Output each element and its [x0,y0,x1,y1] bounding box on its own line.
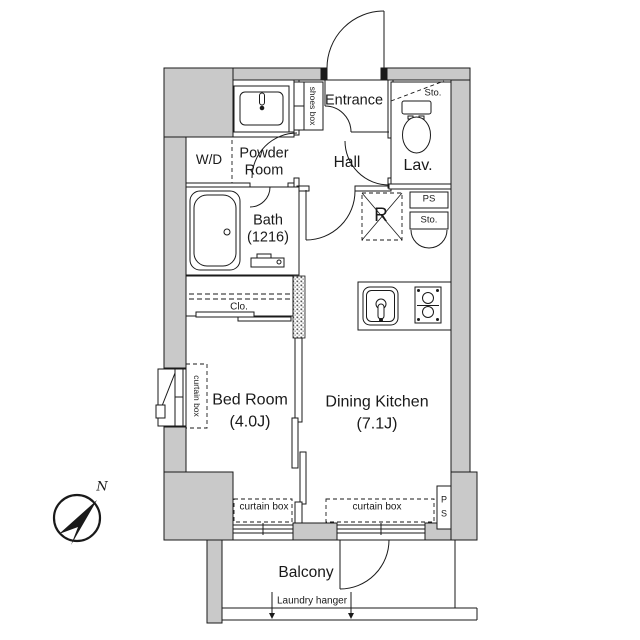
storage-double-doors [411,230,447,248]
bed-room-name: Bed Room [212,392,288,409]
window-dk-south [337,523,425,535]
powder-room-line1: Powder [239,145,288,161]
feature-label-ps-upper: PS [423,195,436,206]
room-label-bath: Bath (1216) [247,212,289,245]
feature-label-refrigerator: R [374,205,388,227]
room-label-lav: Lav. [403,157,432,175]
room-label-dining-kitchen: Dining Kitchen (7.1J) [325,392,428,437]
feature-label-curtain-box-dk: curtain box [353,501,402,513]
floor-plan: Entrance Hall Lav. Powder Room W/D Bath … [0,0,640,640]
feature-label-closet: Clo. [230,301,248,313]
feature-label-wd: W/D [196,152,222,168]
room-label-bed-room: Bed Room (4.0J) [212,390,288,435]
balcony-railing [222,540,477,620]
bed-room-size: (4.0J) [230,414,271,431]
floor-plan-drawing [0,0,640,640]
hatched-column [293,276,305,338]
window-bedroom-south [233,523,293,535]
hall-dk-door-swing [306,190,355,240]
feature-label-curtain-box-bedroom: curtain box [240,501,289,513]
compass-north-label: N [96,481,107,496]
stove-icon [415,287,441,323]
dining-kitchen-size: (7.1J) [357,416,398,433]
toilet-icon [402,101,431,153]
washbasin-icon [240,92,283,125]
feature-label-lav-storage: Sto. [425,89,442,100]
feature-label-shoes-box: shoes box [307,87,317,126]
feature-label-curtain-box-left: curtain box [191,375,201,417]
feature-label-ps-lower: P S [441,493,447,522]
kitchen-sink-icon [363,287,398,325]
bath-size: (1216) [247,229,289,245]
dining-kitchen-name: Dining Kitchen [325,394,428,411]
room-label-powder-room: Powder Room [239,145,288,178]
room-label-hall: Hall [334,154,361,172]
balcony-door-swing [340,540,389,589]
bath-name: Bath [253,212,283,228]
bathtub-icon [190,191,240,270]
compass-icon [54,495,100,545]
feature-label-storage-mid: Sto. [421,215,438,226]
feature-label-laundry-hanger: Laundry hanger [277,595,347,607]
window-bedroom-west [156,369,186,426]
entrance-door-swing [321,11,387,80]
powder-room-line2: Room [245,162,284,178]
room-label-entrance: Entrance [325,93,383,110]
room-label-balcony: Balcony [278,564,333,582]
